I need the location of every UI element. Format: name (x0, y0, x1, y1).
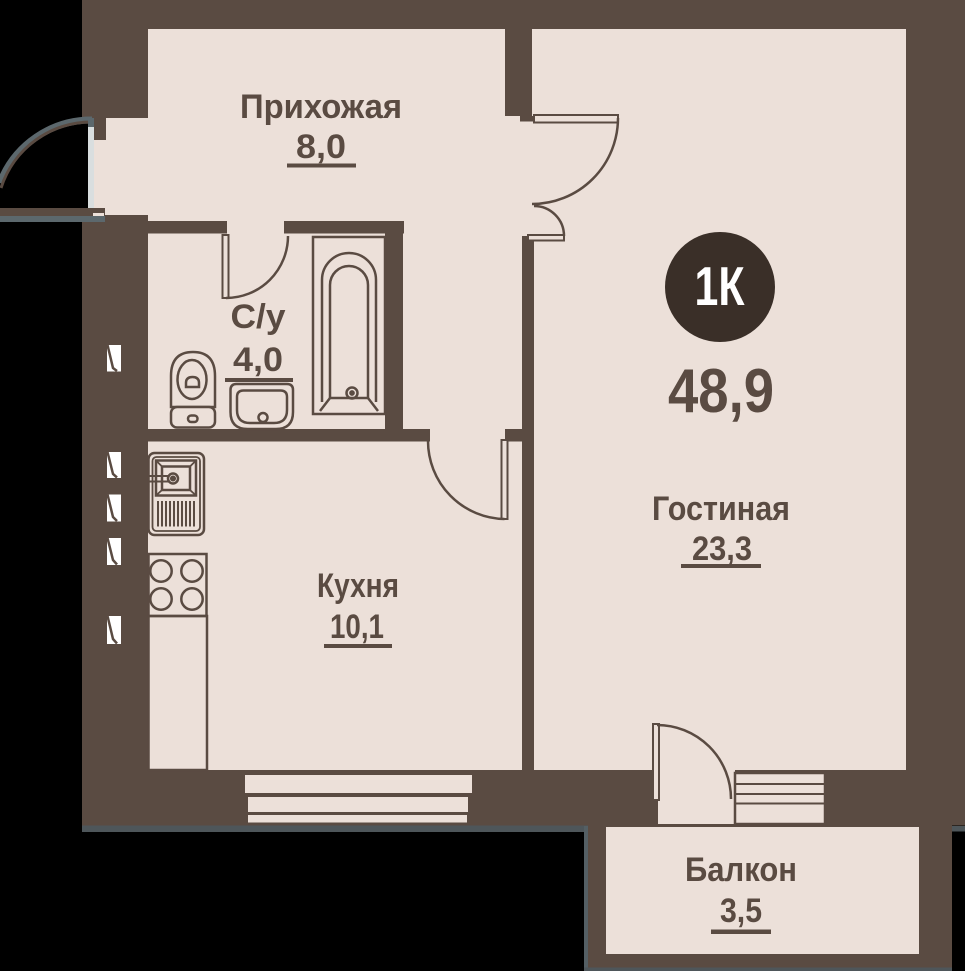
svg-text:10,1: 10,1 (330, 608, 384, 646)
svg-text:Гостиная: Гостиная (652, 490, 790, 528)
svg-text:3,5: 3,5 (720, 892, 762, 930)
svg-text:48,9: 48,9 (668, 357, 774, 426)
svg-text:Кухня: Кухня (317, 567, 399, 605)
svg-text:4,0: 4,0 (233, 341, 283, 379)
svg-text:1К: 1К (695, 255, 745, 317)
svg-text:Балкон: Балкон (685, 851, 797, 889)
svg-text:8,0: 8,0 (296, 128, 346, 166)
svg-text:С/у: С/у (231, 298, 286, 336)
svg-text:23,3: 23,3 (692, 530, 752, 568)
svg-text:Прихожая: Прихожая (240, 88, 402, 126)
